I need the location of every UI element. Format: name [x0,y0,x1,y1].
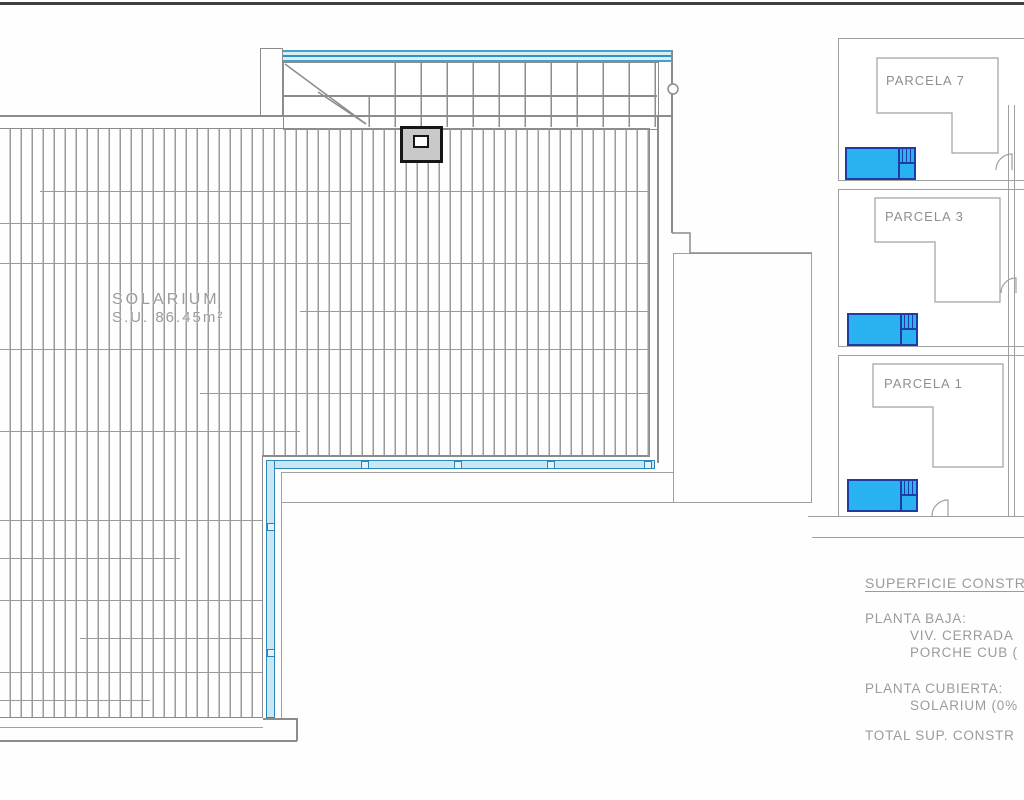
deck-joint [0,600,262,601]
stair-top-railing [283,50,672,62]
pool-step [902,149,904,162]
bottom-step-right [296,718,298,741]
floor-plan-drawing: SOLARIUM S.U. 86.45m² PARCELA 7 PARCELA … [0,0,1024,800]
summary-solarium: SOLARIUM (0% [910,698,1018,713]
railing-post [644,461,652,469]
railing-vertical [266,460,275,718]
stair-treads-lower [344,96,656,127]
stair-left-column [260,48,283,116]
pool-step [904,481,906,494]
deck-joint [40,191,649,192]
deck-joint [0,672,262,673]
boundary-wall-inner [1014,105,1015,516]
stair-mid-line [283,95,657,97]
summary-porche-cub: PORCHE CUB ( [910,645,1018,660]
pool-step [912,481,914,494]
bottom-step-inner [0,727,263,728]
parcel-7-label: PARCELA 7 [886,73,965,88]
pool-step [908,315,910,328]
deck-joint [80,638,262,639]
railing-post [361,461,369,469]
railing-post [267,649,275,657]
skylight-opening [413,135,429,148]
solarium-deck-left-column [0,455,263,718]
deck-joint [0,431,300,432]
pool-parcel-3 [847,313,918,346]
boundary-wall-outer [1008,105,1009,516]
solarium-area-label: S.U. 86.45m² [112,309,224,326]
parcel-1-label: PARCELA 1 [884,376,963,391]
deck-joint [200,393,649,394]
summary-planta-cubierta: PLANTA CUBIERTA: [865,681,1003,696]
pool-step [908,481,910,494]
deck-joint [0,349,649,350]
terrace-outline [673,253,812,503]
pool-parcel-1 [847,479,918,512]
summary-title: SUPERFICIE CONSTR [865,575,1024,591]
porch-bottom-line [281,502,673,503]
drain-marker [668,84,678,94]
solarium-label: SOLARIUM [112,291,220,309]
parcel-3-label: PARCELA 3 [885,209,964,224]
site-boundary-line [812,537,1024,538]
deck-outer-right-line [657,115,659,463]
railing-post [454,461,462,469]
deck-joint [0,223,350,224]
pool-divider [898,162,914,164]
stair-treads-upper [370,63,656,96]
pool-step [912,315,914,328]
summary-planta-baja: PLANTA BAJA: [865,611,967,626]
deck-joint [0,700,150,701]
solarium-deck-upper [0,128,650,455]
pool-parcel-7 [845,147,916,180]
summary-viv-cerrada: VIV. CERRADA [910,628,1014,643]
surface-summary: SUPERFICIE CONSTR PLANTA BAJA: VIV. CERR… [865,570,1024,770]
porch-step-line [281,472,673,473]
bottom-step-top [263,718,297,720]
pool-step [904,315,906,328]
deck-outer-top-line [0,115,672,117]
wing-right-edge [671,50,673,233]
pool-step [906,149,908,162]
porch-left-line [281,472,282,718]
deck-joint [0,558,180,559]
pool-divider [900,328,916,330]
bottom-step-bottom [0,740,297,742]
sheet-top-rule [0,2,1024,5]
summary-total: TOTAL SUP. CONSTR [865,728,1015,743]
deck-joint [0,520,262,521]
pool-divider [900,494,916,496]
railing-post [267,523,275,531]
cell1-bottom-extension [808,516,838,517]
deck-joint [0,263,649,264]
deck-upper-bottom-edge [263,455,650,457]
railing-post [547,461,555,469]
wing-notch-outline [672,233,812,253]
skylight [400,126,443,163]
deck-joint [300,311,649,312]
pool-step [910,149,912,162]
